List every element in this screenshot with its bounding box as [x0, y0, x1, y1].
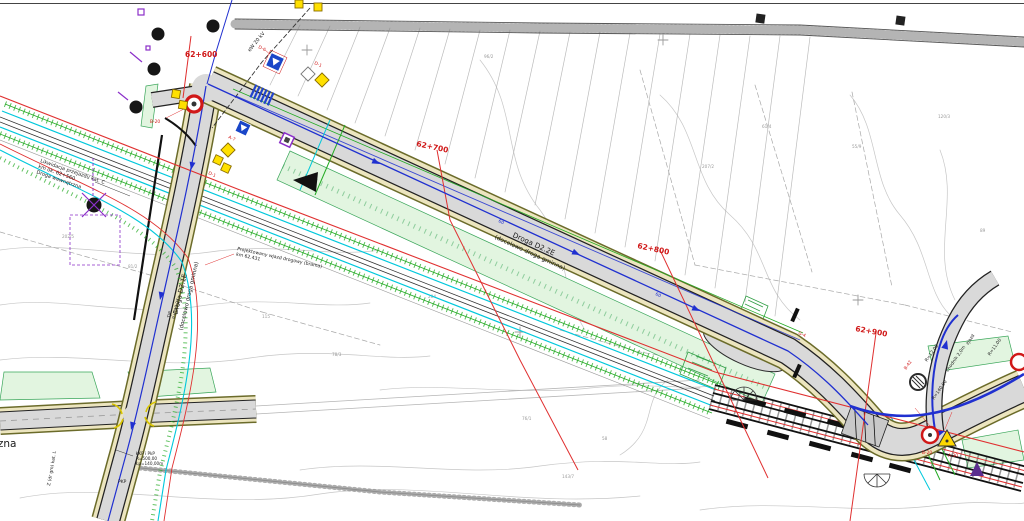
- verge-area: [0, 372, 100, 400]
- station-label-62-800: 62+800: [637, 241, 671, 257]
- tree-symbol: [148, 63, 161, 76]
- pkp-label: PKP: [118, 479, 127, 485]
- site-plan-canvas: 202/5 81/2 115 78/3 204 76/1 58 207/2 61…: [0, 0, 1024, 521]
- sign-code: B-42: [903, 359, 914, 371]
- tree-symbol: [130, 101, 143, 114]
- parcel-number: 207/2: [702, 164, 714, 169]
- tree-symbol: [152, 28, 165, 41]
- station-label-62-900: 62+900: [855, 324, 888, 338]
- culvert-mark: [895, 15, 905, 25]
- sign-b20-right: [922, 427, 938, 443]
- purple-marks: [70, 9, 150, 265]
- station-label-62-600: 62+600: [185, 50, 217, 59]
- sign-red-circle-edge: [1011, 354, 1024, 370]
- road-d22e: [208, 84, 1024, 442]
- tree-symbol: [207, 20, 220, 33]
- parcel-number: 89: [980, 228, 986, 233]
- site-plan-drawing: 202/5 81/2 115 78/3 204 76/1 58 207/2 61…: [0, 0, 1024, 521]
- parcel-number: 81/2: [128, 264, 138, 269]
- sign-code: A-7: [227, 134, 236, 143]
- parcel-number: 58: [602, 436, 608, 441]
- station-label-62-700: 62+700: [416, 139, 450, 155]
- parcel-number: 120/3: [938, 114, 950, 119]
- sign-d1-removed: [301, 67, 315, 81]
- sign-code: A-30: [948, 453, 958, 459]
- parcel-number: 55/9: [852, 144, 862, 149]
- sign-code: B-20: [922, 450, 932, 456]
- sign-b20: [186, 96, 202, 112]
- sign-code: D-1: [313, 60, 323, 69]
- sign-d1: [221, 143, 235, 157]
- parcel-number: 78/3: [332, 352, 342, 357]
- parcel-number: 115: [262, 314, 270, 319]
- internal-road-label: dr. wewnętrzna: [0, 438, 16, 450]
- existing-top-road: [235, 13, 1024, 47]
- curve-data-label: ŁKP i PkP R=500,00 Łp=140,00m: [135, 451, 163, 466]
- warning-glyph: [946, 440, 949, 443]
- curve-line: Łp=140,00m: [135, 461, 163, 466]
- parcel-number: 96/2: [484, 54, 494, 59]
- sign-d1: [315, 73, 329, 87]
- sign-code: B-20: [150, 119, 160, 125]
- parcel-number: 202/5: [62, 234, 74, 239]
- parcel-number: 61/4: [762, 124, 772, 129]
- gate-bar: [790, 308, 799, 322]
- sign-code: D-6: [257, 44, 267, 53]
- dirt-track: [256, 380, 700, 414]
- parcel-number: 143/7: [562, 474, 574, 479]
- parcel-number: 76/1: [522, 416, 532, 421]
- embankment-band: [140, 468, 580, 505]
- internal-kat-label: Z (dr gm) kat. L: [46, 450, 58, 486]
- sign-b42: [910, 374, 926, 390]
- sign-d6: [263, 50, 287, 74]
- culvert-mark: [755, 13, 765, 23]
